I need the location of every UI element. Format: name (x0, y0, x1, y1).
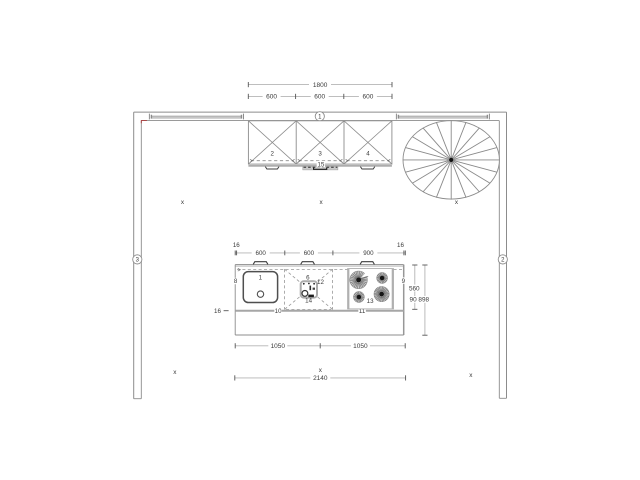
svg-text:4: 4 (366, 151, 370, 158)
svg-text:x: x (173, 369, 177, 376)
svg-text:15: 15 (317, 162, 325, 169)
svg-text:8: 8 (234, 278, 238, 285)
svg-text:6: 6 (306, 274, 310, 281)
svg-text:10: 10 (275, 308, 282, 315)
svg-text:600: 600 (256, 250, 267, 257)
svg-text:560: 560 (409, 285, 420, 292)
svg-text:16: 16 (397, 242, 404, 249)
svg-text:900: 900 (363, 250, 374, 257)
svg-text:14: 14 (305, 297, 312, 304)
svg-text:16: 16 (233, 242, 240, 249)
svg-text:x: x (319, 367, 323, 374)
svg-text:x: x (469, 372, 473, 379)
svg-text:600: 600 (304, 250, 315, 257)
svg-text:13: 13 (367, 298, 374, 305)
svg-text:3: 3 (318, 151, 322, 158)
svg-text:x: x (455, 199, 459, 206)
svg-text:2: 2 (270, 151, 274, 158)
svg-text:x: x (319, 199, 323, 206)
svg-text:1050: 1050 (271, 343, 286, 350)
svg-text:2140: 2140 (313, 375, 328, 382)
svg-text:600: 600 (362, 94, 373, 101)
svg-text:1050: 1050 (353, 343, 368, 350)
svg-text:1: 1 (259, 275, 263, 282)
svg-text:600: 600 (266, 94, 277, 101)
svg-text:9: 9 (402, 278, 406, 285)
svg-text:x: x (181, 199, 185, 206)
svg-text:12: 12 (317, 279, 324, 286)
svg-text:90 898: 90 898 (410, 297, 430, 304)
svg-text:600: 600 (314, 94, 325, 101)
svg-text:16: 16 (214, 308, 221, 315)
svg-text:1800: 1800 (313, 82, 328, 89)
